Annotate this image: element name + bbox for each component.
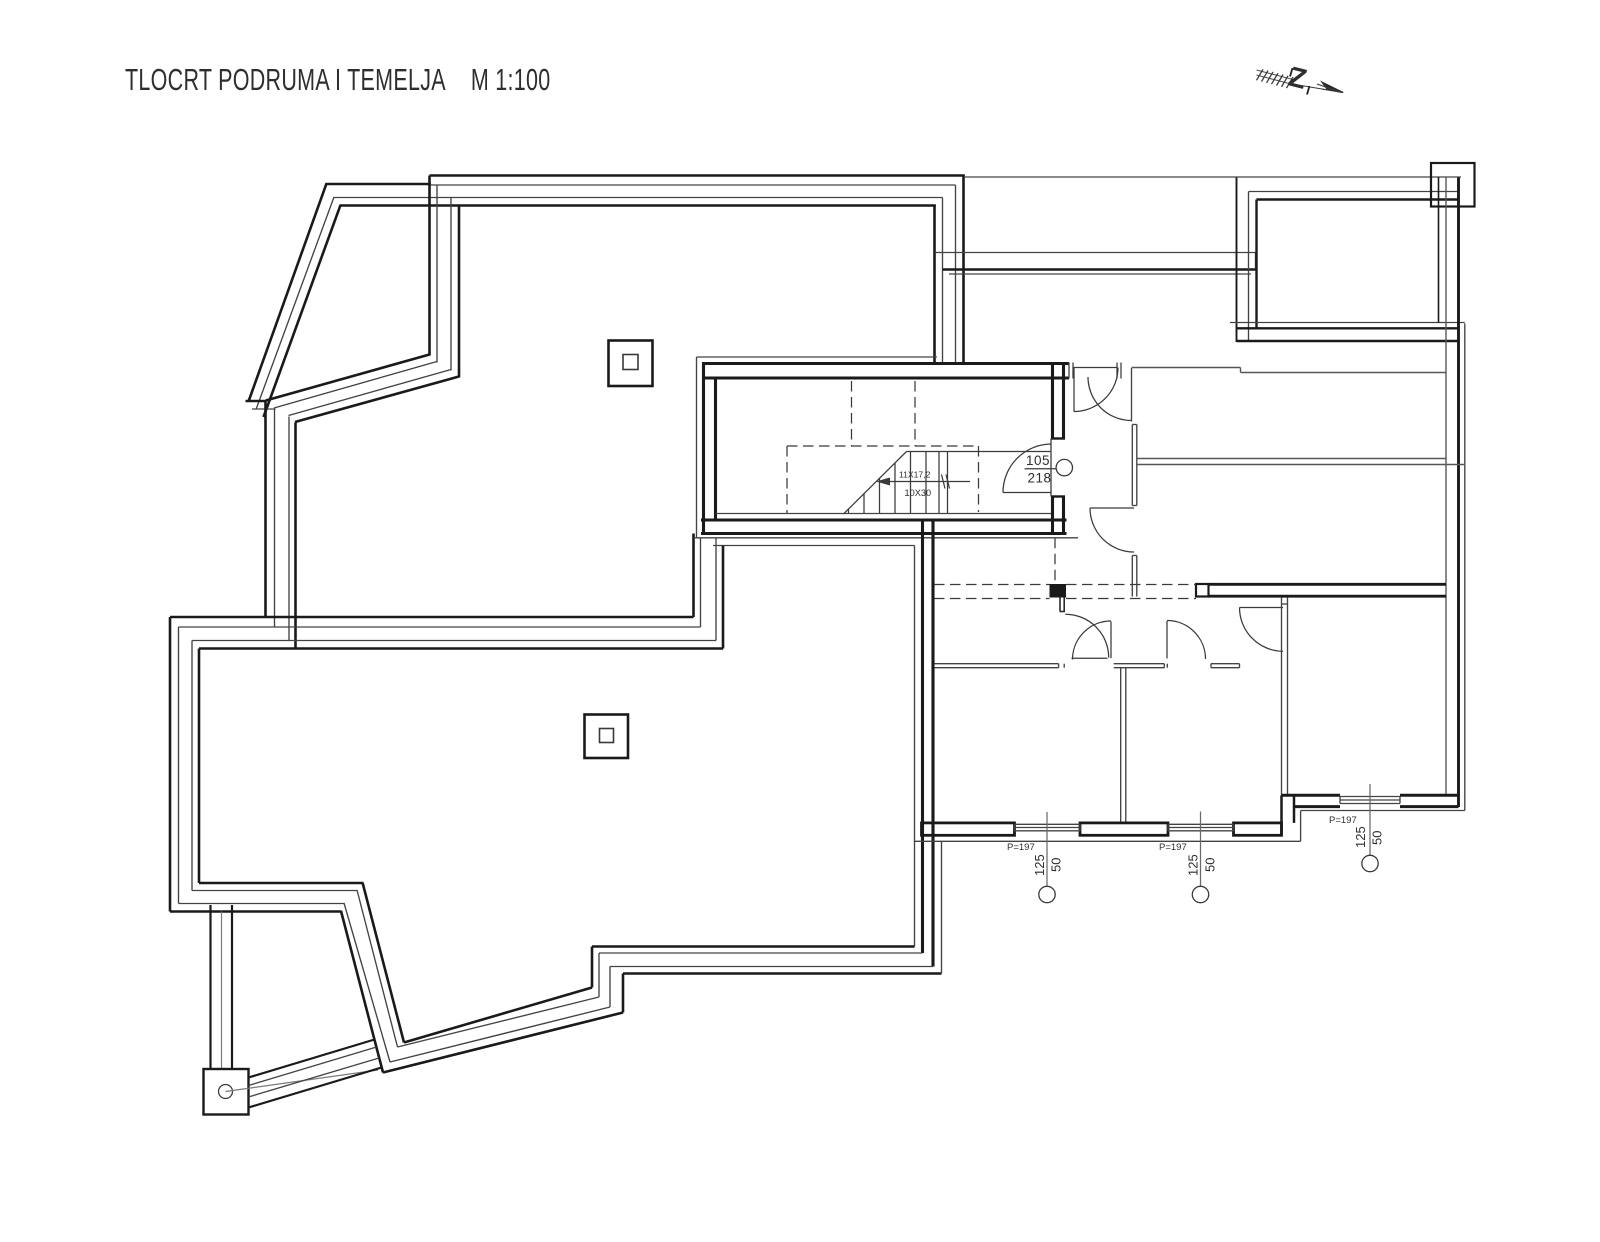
svg-text:P=197: P=197 xyxy=(1329,815,1357,826)
svg-text:105: 105 xyxy=(1026,453,1050,468)
svg-text:P=197: P=197 xyxy=(1159,842,1187,853)
svg-text:TLOCRT PODRUMA I TEMELJA M: TLOCRT PODRUMA I TEMELJA M 1:100 xyxy=(125,62,551,97)
svg-text:Z: Z xyxy=(1286,61,1310,95)
svg-text:P=197: P=197 xyxy=(1007,842,1035,853)
svg-text:50: 50 xyxy=(1203,858,1218,872)
svg-text:11X17,2: 11X17,2 xyxy=(899,470,931,480)
svg-text:125: 125 xyxy=(1032,854,1047,876)
svg-text:125: 125 xyxy=(1353,826,1368,848)
svg-text:125: 125 xyxy=(1186,854,1201,876)
svg-text:50: 50 xyxy=(1049,858,1064,872)
svg-text:218: 218 xyxy=(1028,471,1052,486)
svg-text:50: 50 xyxy=(1370,831,1385,845)
svg-text:10X30: 10X30 xyxy=(905,488,932,498)
